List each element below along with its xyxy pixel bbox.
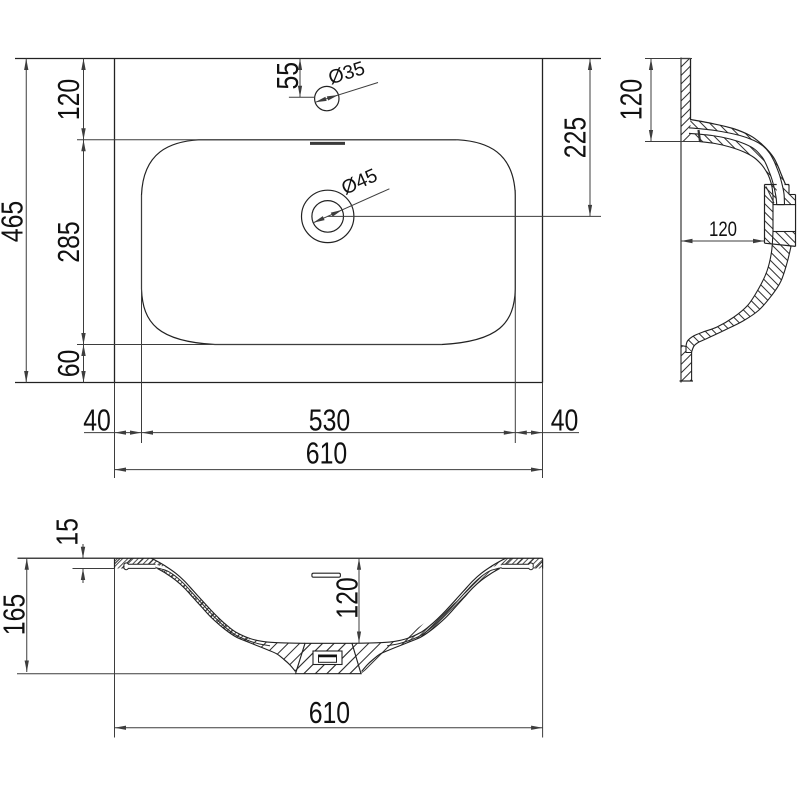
svg-text:120: 120: [52, 79, 86, 120]
svg-text:225: 225: [558, 117, 592, 158]
svg-text:610: 610: [309, 696, 350, 730]
svg-text:15: 15: [51, 518, 85, 546]
svg-text:120: 120: [330, 577, 364, 618]
svg-text:465: 465: [0, 201, 29, 242]
svg-text:165: 165: [0, 594, 32, 635]
svg-text:40: 40: [83, 404, 111, 438]
svg-text:120: 120: [614, 79, 648, 120]
svg-text:60: 60: [52, 350, 86, 378]
svg-text:40: 40: [551, 404, 579, 438]
svg-text:55: 55: [271, 62, 305, 90]
svg-text:120: 120: [709, 218, 737, 241]
svg-text:285: 285: [52, 221, 86, 262]
svg-text:610: 610: [306, 437, 347, 471]
svg-text:530: 530: [309, 404, 350, 438]
